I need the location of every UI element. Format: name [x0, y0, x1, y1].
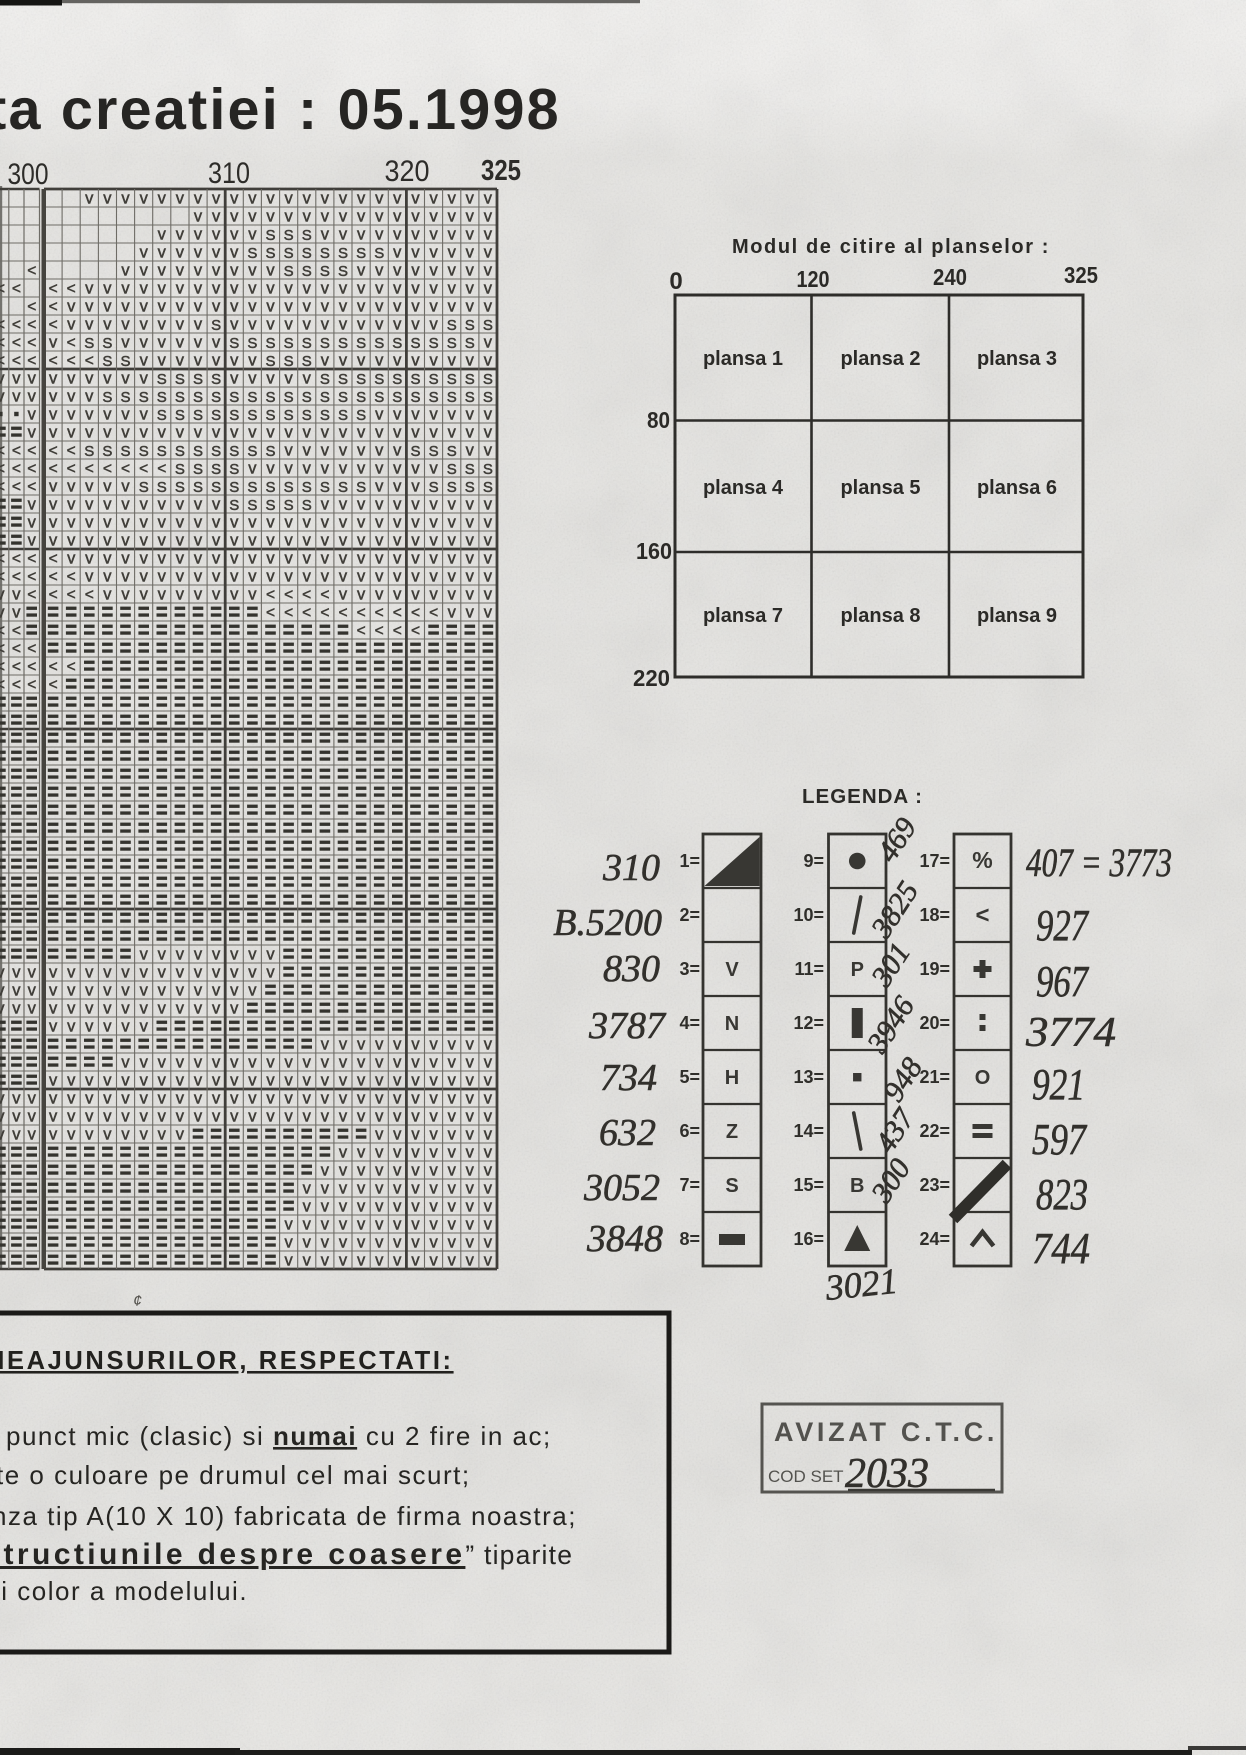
svg-text:v: v: [339, 532, 348, 550]
svg-text:S: S: [265, 407, 275, 424]
svg-text:<: <: [121, 460, 130, 477]
svg-text:v: v: [466, 1252, 475, 1270]
svg-text:v: v: [248, 1072, 257, 1090]
svg-text:v: v: [448, 226, 457, 244]
svg-text:ata creatiei : 05.1998: ata creatiei : 05.1998: [0, 78, 561, 142]
svg-text:v: v: [339, 1234, 348, 1252]
svg-text:v: v: [85, 406, 94, 424]
svg-text:v: v: [49, 496, 58, 514]
svg-text:<: <: [12, 352, 21, 369]
svg-text:S: S: [429, 389, 439, 406]
svg-text:<: <: [27, 568, 36, 585]
svg-text:v: v: [158, 190, 167, 208]
svg-text:S: S: [447, 317, 457, 334]
svg-text:v: v: [103, 496, 112, 514]
svg-text:v: v: [448, 1108, 457, 1126]
svg-text:v: v: [303, 460, 312, 478]
svg-text:v: v: [230, 982, 239, 1000]
svg-text:S: S: [193, 389, 203, 406]
svg-text:S: S: [102, 389, 112, 406]
svg-text:S: S: [265, 335, 275, 352]
svg-text:S: S: [447, 389, 457, 406]
svg-text:v: v: [466, 550, 475, 568]
svg-text:v: v: [393, 262, 402, 280]
svg-text:v: v: [411, 1252, 420, 1270]
svg-text:<: <: [338, 604, 347, 621]
svg-text:v: v: [176, 550, 185, 568]
svg-text:v: v: [230, 1090, 239, 1108]
svg-text:v: v: [230, 298, 239, 316]
svg-text:S: S: [374, 335, 384, 352]
svg-text:v: v: [28, 424, 37, 442]
svg-text:<: <: [49, 568, 58, 585]
svg-text:v: v: [248, 190, 257, 208]
svg-text:COD SET: COD SET: [768, 1467, 844, 1486]
svg-text:v: v: [375, 316, 384, 334]
svg-text:v: v: [140, 982, 149, 1000]
svg-text:<: <: [12, 334, 21, 351]
svg-text:v: v: [321, 190, 330, 208]
svg-text:¢: ¢: [133, 1293, 142, 1310]
svg-text:S: S: [465, 461, 475, 478]
svg-text:S: S: [284, 497, 294, 514]
svg-text:v: v: [158, 568, 167, 586]
svg-text:v: v: [429, 352, 438, 370]
svg-text:v: v: [85, 424, 94, 442]
svg-text:v: v: [12, 982, 21, 1000]
svg-text:v: v: [284, 1234, 293, 1252]
svg-text:v: v: [411, 280, 420, 298]
svg-text:S: S: [374, 389, 384, 406]
svg-text:v: v: [484, 1108, 493, 1126]
svg-text:v: v: [303, 532, 312, 550]
svg-text:v: v: [85, 964, 94, 982]
svg-text:v: v: [85, 190, 94, 208]
svg-text:v: v: [303, 316, 312, 334]
svg-text:v: v: [357, 1162, 366, 1180]
svg-text:<: <: [393, 622, 402, 639]
svg-text:v: v: [339, 1108, 348, 1126]
svg-text:v: v: [411, 406, 420, 424]
svg-text:v: v: [140, 190, 149, 208]
svg-text:S: S: [284, 335, 294, 352]
svg-text:v: v: [393, 298, 402, 316]
svg-text:v: v: [140, 1108, 149, 1126]
svg-text:<: <: [0, 658, 5, 675]
svg-text:v: v: [375, 1054, 384, 1072]
svg-text:<: <: [320, 586, 329, 603]
svg-text:v: v: [375, 514, 384, 532]
svg-text:v: v: [230, 244, 239, 262]
svg-text:v: v: [67, 406, 76, 424]
svg-text:v: v: [176, 1126, 185, 1144]
svg-text:S: S: [410, 371, 420, 388]
svg-text:v: v: [85, 1000, 94, 1018]
svg-text:v: v: [357, 1198, 366, 1216]
svg-text:v: v: [28, 514, 37, 532]
svg-text:v: v: [429, 1198, 438, 1216]
svg-text:v: v: [28, 532, 37, 550]
svg-text:v: v: [230, 1108, 239, 1126]
svg-text:v: v: [230, 316, 239, 334]
svg-text:v: v: [248, 514, 257, 532]
svg-text:v: v: [194, 532, 203, 550]
svg-text:v: v: [429, 1144, 438, 1162]
svg-text:v: v: [248, 370, 257, 388]
svg-text:S: S: [338, 245, 348, 262]
svg-text:v: v: [103, 1126, 112, 1144]
svg-text:v: v: [284, 1090, 293, 1108]
svg-text:v: v: [194, 244, 203, 262]
svg-text:v: v: [248, 208, 257, 226]
svg-text:plansa 1: plansa 1: [703, 348, 783, 370]
svg-text:S: S: [338, 335, 348, 352]
svg-text:v: v: [357, 586, 366, 604]
svg-text:v: v: [248, 946, 257, 964]
svg-text:v: v: [103, 280, 112, 298]
svg-text:v: v: [194, 262, 203, 280]
svg-text:v: v: [140, 262, 149, 280]
svg-text:v: v: [357, 1252, 366, 1270]
svg-text:<: <: [12, 676, 21, 693]
svg-text:v: v: [339, 514, 348, 532]
svg-text:v: v: [140, 1072, 149, 1090]
svg-text:v: v: [448, 244, 457, 262]
svg-text:v: v: [429, 460, 438, 478]
svg-text:S: S: [302, 335, 312, 352]
svg-text:v: v: [194, 298, 203, 316]
svg-text:v: v: [194, 316, 203, 334]
svg-text:v: v: [230, 226, 239, 244]
svg-text:v: v: [266, 964, 275, 982]
svg-text:S: S: [265, 443, 275, 460]
svg-text:v: v: [393, 1162, 402, 1180]
svg-text:v: v: [176, 424, 185, 442]
svg-text:v: v: [375, 478, 384, 496]
svg-text:v: v: [429, 1054, 438, 1072]
svg-text:v: v: [212, 424, 221, 442]
svg-text:3787: 3787: [588, 1005, 667, 1047]
svg-text:v: v: [0, 1126, 5, 1144]
svg-text:v: v: [339, 190, 348, 208]
svg-text:v: v: [466, 1090, 475, 1108]
svg-text:v: v: [429, 568, 438, 586]
svg-text:v: v: [12, 964, 21, 982]
svg-text:S: S: [447, 479, 457, 496]
svg-text:v: v: [158, 1108, 167, 1126]
svg-text:240: 240: [933, 264, 967, 290]
svg-text:S: S: [175, 443, 185, 460]
svg-text:plansa 3: plansa 3: [977, 348, 1057, 370]
svg-text:325: 325: [1064, 262, 1098, 288]
svg-text:v: v: [303, 1180, 312, 1198]
svg-text:<: <: [0, 478, 5, 495]
svg-text:v: v: [194, 226, 203, 244]
svg-text:v: v: [484, 1180, 493, 1198]
svg-text:v: v: [85, 496, 94, 514]
svg-text:v: v: [158, 1072, 167, 1090]
svg-text:v: v: [466, 1198, 475, 1216]
svg-text:v: v: [357, 1108, 366, 1126]
svg-text:S: S: [725, 1175, 738, 1197]
svg-text:<: <: [302, 604, 311, 621]
svg-text:v: v: [284, 532, 293, 550]
svg-text:19=: 19=: [919, 959, 950, 979]
svg-text:v: v: [230, 262, 239, 280]
svg-text:<: <: [12, 622, 21, 639]
svg-text:v: v: [194, 334, 203, 352]
svg-text:v: v: [303, 190, 312, 208]
svg-text:v: v: [140, 532, 149, 550]
svg-text:v: v: [448, 532, 457, 550]
svg-text:S: S: [429, 371, 439, 388]
svg-text:S: S: [84, 335, 94, 352]
svg-text:S: S: [211, 389, 221, 406]
svg-text:v: v: [375, 568, 384, 586]
svg-text:v: v: [321, 1198, 330, 1216]
svg-text:v: v: [484, 1126, 493, 1144]
svg-text:v: v: [484, 550, 493, 568]
svg-text:v: v: [230, 208, 239, 226]
svg-text:v: v: [212, 532, 221, 550]
svg-text:v: v: [339, 352, 348, 370]
svg-text:<: <: [0, 316, 5, 333]
svg-text:v: v: [466, 406, 475, 424]
svg-text:v: v: [448, 514, 457, 532]
svg-text:<: <: [27, 460, 36, 477]
svg-text:<: <: [0, 550, 5, 567]
svg-text:v: v: [484, 1036, 493, 1054]
svg-text:v: v: [121, 424, 130, 442]
svg-text:v: v: [321, 532, 330, 550]
svg-text:v: v: [429, 514, 438, 532]
svg-text:16=: 16=: [793, 1229, 824, 1249]
svg-text:v: v: [194, 280, 203, 298]
svg-text:S: S: [302, 227, 312, 244]
svg-text:v: v: [429, 226, 438, 244]
svg-text:v: v: [212, 226, 221, 244]
svg-text:v: v: [140, 352, 149, 370]
svg-text:v: v: [321, 568, 330, 586]
svg-text:<: <: [266, 586, 275, 603]
svg-text:v: v: [266, 280, 275, 298]
svg-text:24=: 24=: [919, 1229, 950, 1249]
svg-text:v: v: [28, 1108, 37, 1126]
svg-text:S: S: [410, 443, 420, 460]
svg-text:v: v: [339, 1216, 348, 1234]
svg-text:v: v: [466, 1036, 475, 1054]
svg-text:v: v: [429, 262, 438, 280]
svg-text:v: v: [357, 1054, 366, 1072]
svg-text:v: v: [448, 280, 457, 298]
svg-text:v: v: [375, 424, 384, 442]
svg-text:S: S: [465, 389, 475, 406]
svg-text:S: S: [302, 389, 312, 406]
svg-text:v: v: [448, 586, 457, 604]
svg-text:320: 320: [385, 155, 430, 188]
svg-text:v: v: [140, 946, 149, 964]
svg-text:<: <: [0, 568, 5, 585]
svg-text:v: v: [375, 1162, 384, 1180]
svg-text:v: v: [357, 352, 366, 370]
svg-text:v: v: [448, 406, 457, 424]
svg-text:v: v: [448, 424, 457, 442]
svg-text:v: v: [484, 568, 493, 586]
svg-text:v: v: [448, 352, 457, 370]
svg-text:v: v: [321, 316, 330, 334]
svg-text:v: v: [357, 514, 366, 532]
svg-text:v: v: [303, 1216, 312, 1234]
svg-text:v: v: [411, 568, 420, 586]
svg-text:v: v: [140, 298, 149, 316]
svg-text:v: v: [85, 298, 94, 316]
svg-text:S: S: [265, 479, 275, 496]
svg-text:S: S: [265, 389, 275, 406]
svg-text:v: v: [121, 586, 130, 604]
svg-text:S: S: [338, 389, 348, 406]
svg-text:120: 120: [797, 266, 830, 292]
svg-text:v: v: [393, 190, 402, 208]
svg-text:O: O: [975, 1067, 991, 1089]
svg-text:v: v: [357, 460, 366, 478]
svg-text:v: v: [49, 514, 58, 532]
svg-text:v: v: [85, 478, 94, 496]
svg-text:v: v: [411, 262, 420, 280]
svg-text:v: v: [0, 604, 5, 622]
svg-text:S: S: [139, 479, 149, 496]
svg-text:v: v: [12, 604, 21, 622]
svg-text:v: v: [67, 1090, 76, 1108]
svg-text:v: v: [448, 1054, 457, 1072]
svg-text:v: v: [103, 568, 112, 586]
svg-text:v: v: [49, 982, 58, 1000]
svg-text:v: v: [411, 1108, 420, 1126]
svg-text:3052: 3052: [583, 1167, 660, 1209]
svg-text:<: <: [357, 622, 366, 639]
svg-text:<: <: [411, 622, 420, 639]
svg-text:S: S: [247, 389, 257, 406]
svg-text:160: 160: [636, 538, 672, 564]
svg-text:v: v: [103, 1108, 112, 1126]
svg-text:S: S: [139, 389, 149, 406]
svg-text:v: v: [0, 370, 5, 388]
svg-text:S: S: [338, 407, 348, 424]
svg-text:v: v: [266, 190, 275, 208]
svg-text:v: v: [411, 1198, 420, 1216]
svg-text:300: 300: [8, 158, 49, 191]
svg-text:<: <: [49, 676, 58, 693]
svg-text:v: v: [158, 1090, 167, 1108]
svg-text:v: v: [212, 262, 221, 280]
svg-text:v: v: [448, 1180, 457, 1198]
svg-text:v: v: [393, 1090, 402, 1108]
svg-text:v: v: [484, 226, 493, 244]
svg-text:<: <: [0, 640, 5, 657]
svg-text:v: v: [176, 1054, 185, 1072]
svg-text:v: v: [466, 244, 475, 262]
svg-text:v: v: [466, 298, 475, 316]
svg-text:v: v: [194, 586, 203, 604]
svg-text:v: v: [411, 1216, 420, 1234]
svg-text:v: v: [484, 532, 493, 550]
svg-text:v: v: [49, 532, 58, 550]
svg-text:v: v: [158, 298, 167, 316]
svg-text:S: S: [175, 389, 185, 406]
svg-text:<: <: [49, 586, 58, 603]
svg-text:S: S: [229, 497, 239, 514]
svg-text:v: v: [103, 424, 112, 442]
svg-text:S: S: [193, 371, 203, 388]
svg-text:<: <: [0, 334, 5, 351]
svg-text:220: 220: [633, 665, 670, 691]
svg-text:6=: 6=: [679, 1121, 700, 1141]
svg-text:<: <: [103, 460, 112, 477]
svg-text:v: v: [28, 964, 37, 982]
svg-text:v: v: [466, 1180, 475, 1198]
svg-text:v: v: [140, 1000, 149, 1018]
svg-text:v: v: [393, 208, 402, 226]
svg-text:<: <: [49, 316, 58, 333]
svg-text:v: v: [321, 496, 330, 514]
svg-text:S: S: [356, 335, 366, 352]
svg-text:v: v: [411, 1162, 420, 1180]
svg-text:<: <: [49, 460, 58, 477]
svg-text:v: v: [303, 424, 312, 442]
svg-text:S: S: [247, 245, 257, 262]
svg-text:v: v: [140, 1018, 149, 1036]
svg-text:v: v: [28, 370, 37, 388]
svg-text:v: v: [321, 442, 330, 460]
svg-text:v: v: [140, 316, 149, 334]
svg-text:S: S: [320, 245, 330, 262]
svg-text:v: v: [375, 1144, 384, 1162]
svg-text:v: v: [466, 1162, 475, 1180]
svg-text:<: <: [27, 640, 36, 657]
svg-text:v: v: [248, 460, 257, 478]
svg-text:v: v: [411, 496, 420, 514]
svg-text:823: 823: [1036, 1170, 1088, 1219]
svg-text:v: v: [484, 334, 493, 352]
svg-text:v: v: [339, 280, 348, 298]
svg-text:v: v: [121, 334, 130, 352]
svg-text:v: v: [176, 352, 185, 370]
svg-text:v: v: [248, 982, 257, 1000]
svg-text:v: v: [121, 514, 130, 532]
svg-text:v: v: [411, 1180, 420, 1198]
svg-text:<: <: [67, 568, 76, 585]
svg-text:v: v: [466, 1216, 475, 1234]
svg-text:v: v: [411, 298, 420, 316]
svg-text:v: v: [429, 316, 438, 334]
svg-text:S: S: [320, 263, 330, 280]
svg-text:v: v: [194, 1072, 203, 1090]
svg-text:v: v: [194, 1054, 203, 1072]
svg-text:v: v: [230, 964, 239, 982]
svg-text:<: <: [85, 460, 94, 477]
svg-text:v: v: [339, 226, 348, 244]
svg-text:v: v: [375, 262, 384, 280]
svg-text:S: S: [284, 263, 294, 280]
svg-text:<: <: [320, 604, 329, 621]
svg-text:13=: 13=: [793, 1067, 824, 1087]
svg-text:v: v: [393, 1252, 402, 1270]
svg-text:v: v: [466, 352, 475, 370]
svg-text:v: v: [85, 1108, 94, 1126]
svg-text:v: v: [67, 514, 76, 532]
svg-text:v: v: [140, 514, 149, 532]
svg-text:v: v: [339, 550, 348, 568]
svg-text:v: v: [284, 190, 293, 208]
